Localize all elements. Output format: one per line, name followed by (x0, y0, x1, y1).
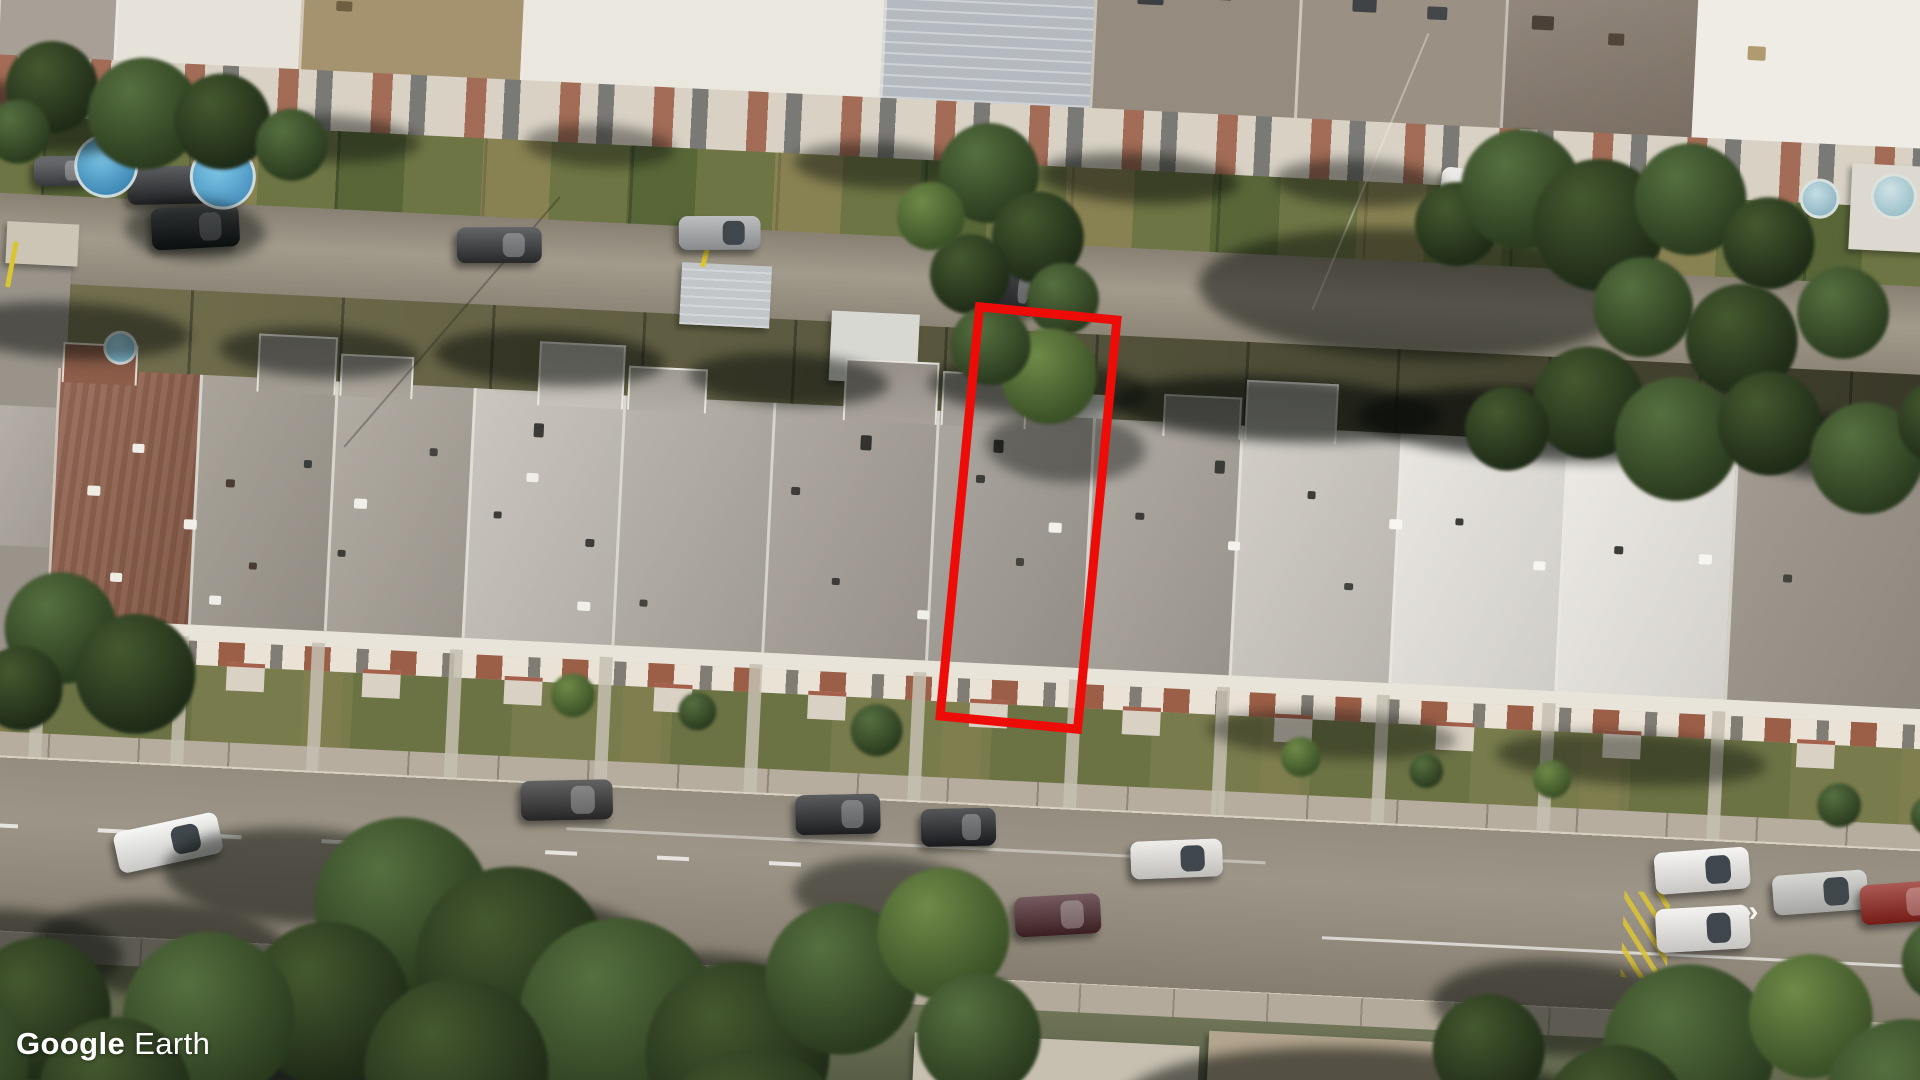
roof-vent (526, 473, 538, 483)
top-roof-flat-gray-1 (1089, 0, 1307, 118)
front-porch (1796, 739, 1835, 769)
roof-vent (1455, 518, 1463, 525)
roof-vent (110, 573, 122, 583)
roof-vent (493, 511, 501, 518)
metal-shed (679, 262, 772, 328)
roof-vent (1352, 0, 1377, 13)
roof-vent (354, 498, 367, 509)
car-windshield (570, 786, 594, 814)
satellite-imagery-viewport[interactable]: » Google Earth (0, 0, 1920, 1080)
car-windshield (503, 233, 525, 258)
front-porch (503, 676, 542, 706)
roof-vent (860, 435, 872, 451)
roof-vent (184, 519, 197, 530)
house-roof (1229, 426, 1404, 684)
top-roof-corrugated (879, 0, 1102, 108)
roof-vent (209, 595, 221, 605)
parked-car-maroon (1014, 893, 1102, 938)
parked-suv-dark (520, 779, 613, 821)
roof-vent (429, 448, 437, 456)
car-windshield (961, 814, 981, 840)
parked-car-alley-silver (679, 216, 761, 250)
roof-vent (87, 485, 100, 496)
roof-vent (1699, 554, 1712, 565)
parked-car-red (1859, 879, 1920, 925)
roof-vent (1532, 15, 1555, 30)
roof-vent (304, 460, 312, 468)
car-windshield (1060, 900, 1084, 928)
car-windshield (1905, 887, 1920, 916)
roof-vent (1608, 33, 1625, 46)
parked-car-white (1655, 904, 1751, 953)
roof-vent (1389, 519, 1402, 530)
car-windshield (1706, 912, 1732, 943)
roof-vent (1427, 6, 1448, 20)
front-porch (1122, 706, 1161, 736)
parked-car-dark (921, 808, 997, 848)
roof-vent (639, 599, 647, 606)
parked-car-alley-dark (457, 227, 542, 263)
watermark-product: Earth (134, 1026, 210, 1062)
car-windshield (841, 800, 864, 828)
front-porch (226, 662, 265, 692)
house-roof (188, 375, 339, 631)
roof-vent (1783, 574, 1792, 582)
house-roof (324, 381, 477, 638)
roof-vent (1533, 561, 1545, 571)
roof-vent (337, 550, 345, 557)
roof-vent (226, 479, 235, 487)
parked-car-white (1130, 838, 1223, 880)
car-windshield (723, 221, 744, 244)
front-porch (807, 691, 846, 721)
parked-car-dark (795, 794, 881, 836)
house-roof (761, 403, 940, 661)
roof-vent (585, 539, 594, 547)
house-roof (611, 395, 776, 652)
roof-vent (1344, 583, 1353, 590)
roof-vent (791, 487, 800, 495)
roof-vent (917, 610, 929, 620)
front-porch (362, 669, 401, 699)
top-roof-flat-gray-2 (1294, 0, 1513, 128)
roof-vent (1215, 460, 1226, 473)
watermark-brand: Google (16, 1026, 125, 1062)
roof-vent (1135, 513, 1144, 520)
car-windshield (1705, 854, 1732, 884)
parked-car-silver (1771, 869, 1869, 916)
roof-vent (533, 423, 544, 437)
top-roof-hip-brown (1500, 0, 1705, 137)
roof-vent (832, 578, 840, 585)
top-roof-tan (298, 0, 533, 80)
roof-vent (132, 444, 144, 454)
parked-car-white (1653, 846, 1751, 895)
roof-vent (336, 1, 352, 12)
car-windshield (1823, 877, 1850, 906)
roof-vent (1614, 546, 1623, 554)
roof-vent (1307, 491, 1315, 499)
car-windshield (1180, 845, 1205, 872)
google-earth-watermark: Google Earth (16, 1026, 210, 1062)
house-roof (462, 388, 627, 645)
roof-vent (1747, 46, 1766, 61)
roof-vent (249, 562, 257, 569)
roof-vent (577, 601, 590, 611)
roof-vent (1228, 541, 1240, 551)
top-roof-white-c (1692, 0, 1920, 153)
